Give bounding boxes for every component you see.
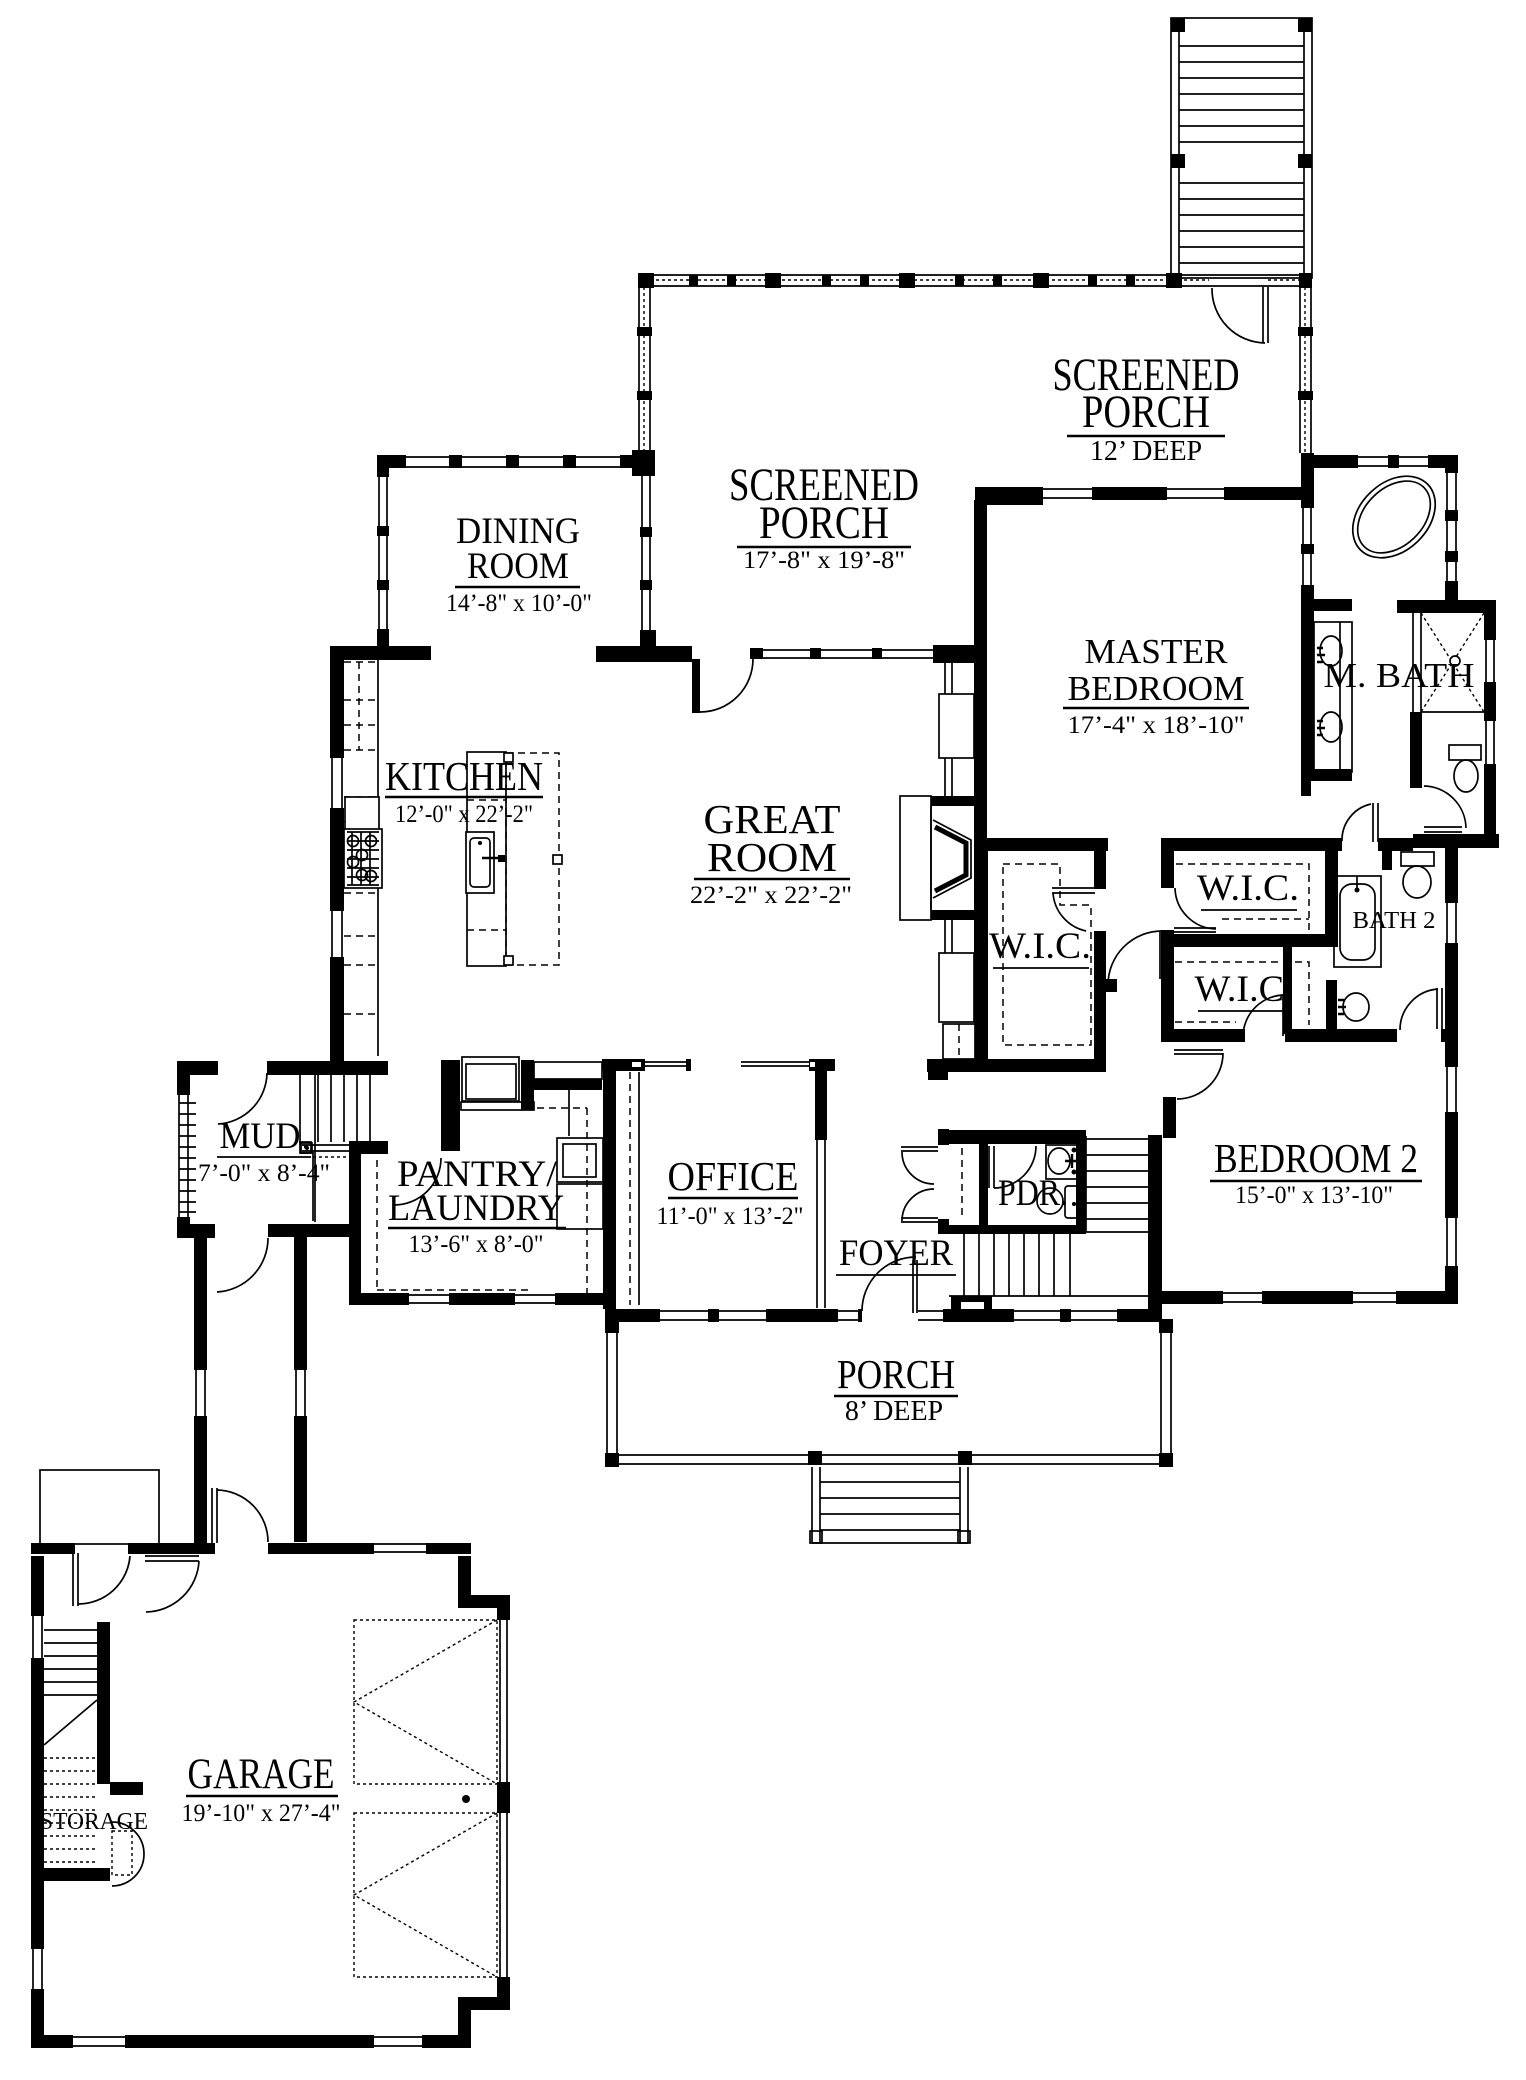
svg-text:PDR.: PDR. xyxy=(998,1173,1068,1214)
svg-text:W.I.C.: W.I.C. xyxy=(1197,868,1299,909)
svg-text:MASTER: MASTER xyxy=(1085,632,1229,671)
svg-text:17’-4" x 18’-10": 17’-4" x 18’-10" xyxy=(1068,712,1245,739)
svg-text:W.I.C.: W.I.C. xyxy=(989,926,1091,967)
svg-text:13’-6" x 8’-0": 13’-6" x 8’-0" xyxy=(409,1231,544,1258)
svg-text:FOYER: FOYER xyxy=(839,1233,953,1274)
svg-text:11’-0" x 13’-2": 11’-0" x 13’-2" xyxy=(657,1203,804,1230)
svg-text:ROOM: ROOM xyxy=(467,546,569,587)
svg-text:PORCH: PORCH xyxy=(759,497,889,549)
svg-text:OFFICE: OFFICE xyxy=(668,1153,799,1199)
svg-text:MUD: MUD xyxy=(220,1116,301,1157)
svg-text:GARAGE: GARAGE xyxy=(188,1751,335,1798)
svg-text:BEDROOM 2: BEDROOM 2 xyxy=(1214,1135,1418,1181)
svg-text:15’-0" x 13’-10": 15’-0" x 13’-10" xyxy=(1235,1182,1393,1209)
svg-text:BATH 2: BATH 2 xyxy=(1353,908,1436,934)
svg-text:19’-10" x 27’-4": 19’-10" x 27’-4" xyxy=(182,1800,341,1827)
svg-text:M. BATH: M. BATH xyxy=(1324,656,1475,695)
svg-text:KITCHEN: KITCHEN xyxy=(385,753,543,799)
svg-text:STORAGE: STORAGE xyxy=(40,1809,148,1835)
svg-text:LAUNDRY: LAUNDRY xyxy=(388,1188,564,1229)
svg-text:BEDROOM: BEDROOM xyxy=(1068,669,1245,708)
svg-text:17’-8" x 19’-8": 17’-8" x 19’-8" xyxy=(743,547,905,574)
svg-text:PORCH: PORCH xyxy=(837,1351,955,1397)
svg-text:W.I.C.: W.I.C. xyxy=(1195,969,1294,1010)
svg-text:ROOM: ROOM xyxy=(707,834,837,880)
svg-text:22’-2" x 22’-2": 22’-2" x 22’-2" xyxy=(690,882,852,909)
svg-text:8’ DEEP: 8’ DEEP xyxy=(845,1396,943,1427)
svg-text:7’-0" x 8’-4": 7’-0" x 8’-4" xyxy=(198,1160,330,1187)
svg-text:PORCH: PORCH xyxy=(1082,386,1210,438)
svg-text:12’ DEEP: 12’ DEEP xyxy=(1090,436,1202,467)
svg-text:14’-8" x 10’-0": 14’-8" x 10’-0" xyxy=(446,590,592,617)
svg-text:12’-0" x 22’-2": 12’-0" x 22’-2" xyxy=(395,801,533,828)
